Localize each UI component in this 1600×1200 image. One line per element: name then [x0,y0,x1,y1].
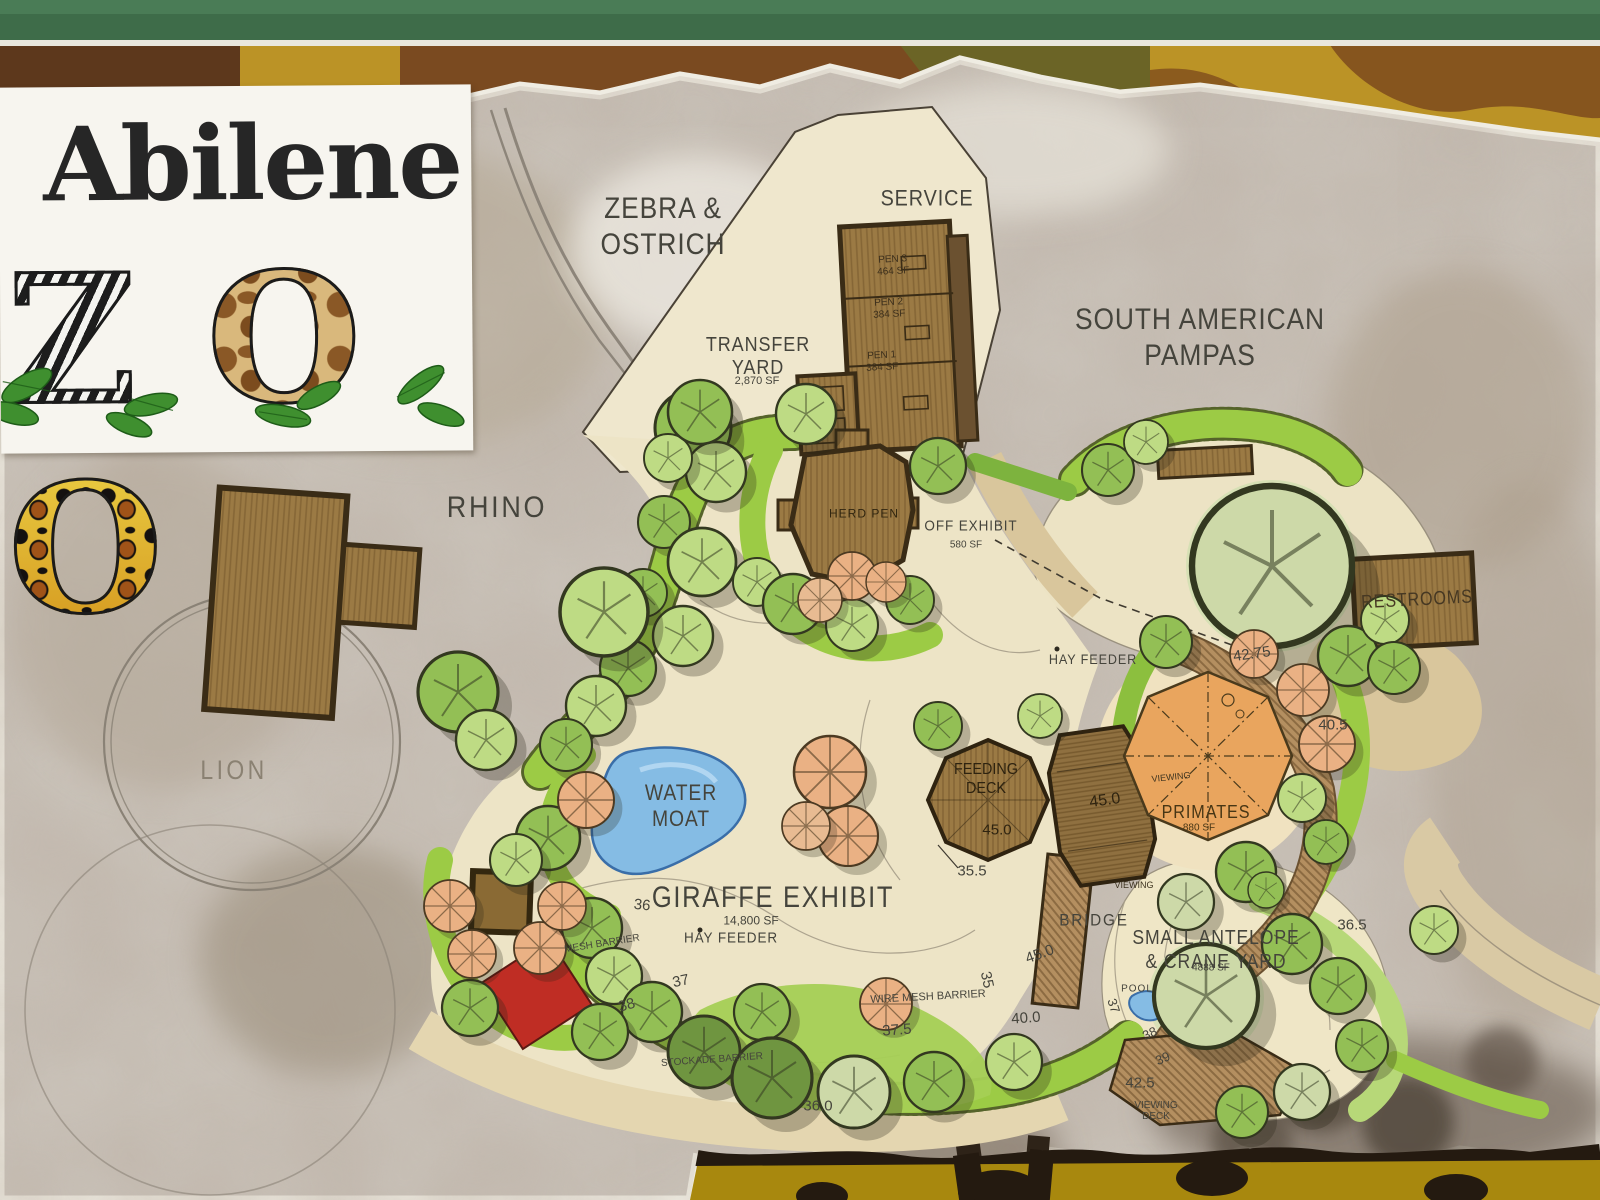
zoo-logo-card: Abilene Z O O [0,84,473,453]
logo-abilene-text: Abilene [43,102,462,225]
logo-letter-o-leopard: O [7,443,168,653]
zoo-sign-photo: Abilene Z O O ZEBRA & OSTRICHSERVICESOUT… [0,0,1600,1200]
bottom-frame [690,1149,1600,1200]
logo-letter-z-zebra: Z [6,235,141,445]
logo-zoo-text: Z O O [6,232,475,653]
primates-structure [1124,672,1292,840]
logo-letter-o-giraffe: O [206,233,367,443]
